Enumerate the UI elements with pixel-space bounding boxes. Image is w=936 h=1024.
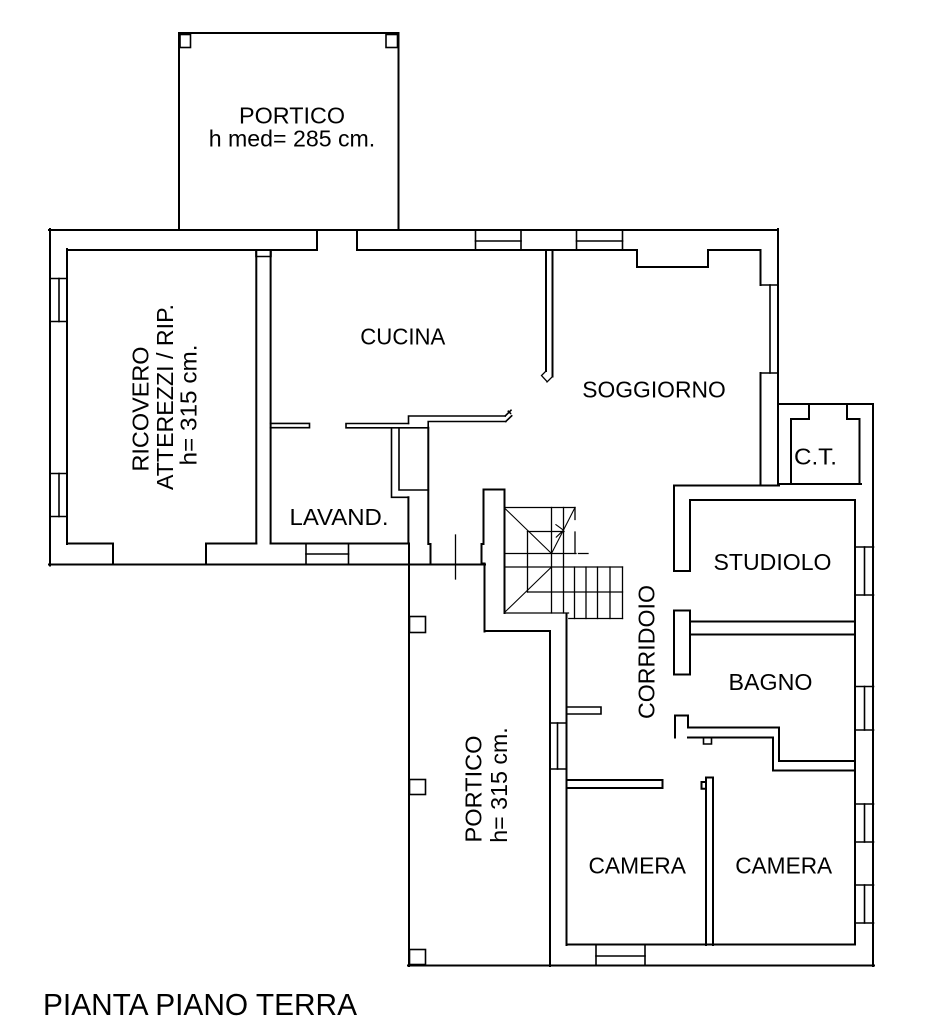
- svg-text:h= 315 cm.: h= 315 cm.: [486, 727, 512, 843]
- svg-text:CUCINA: CUCINA: [360, 323, 445, 349]
- svg-text:h med= 285 cm.: h med= 285 cm.: [209, 126, 376, 152]
- svg-text:ATTEREZZI / RIP.: ATTEREZZI / RIP.: [152, 304, 178, 490]
- svg-text:STUDIOLO: STUDIOLO: [714, 549, 832, 575]
- svg-text:h= 315 cm.: h= 315 cm.: [176, 345, 202, 466]
- svg-text:C.T.: C.T.: [794, 444, 837, 470]
- svg-text:CAMERA: CAMERA: [588, 853, 686, 879]
- svg-text:PIANTA PIANO TERRA: PIANTA PIANO TERRA: [43, 989, 358, 1022]
- svg-text:CAMERA: CAMERA: [735, 853, 832, 879]
- svg-text:CORRIDOIO: CORRIDOIO: [634, 585, 660, 719]
- svg-text:SOGGIORNO: SOGGIORNO: [582, 377, 726, 403]
- svg-text:BAGNO: BAGNO: [729, 669, 813, 695]
- svg-text:RICOVERO: RICOVERO: [128, 347, 154, 472]
- svg-text:PORTICO: PORTICO: [461, 736, 487, 843]
- svg-text:LAVAND.: LAVAND.: [290, 504, 389, 530]
